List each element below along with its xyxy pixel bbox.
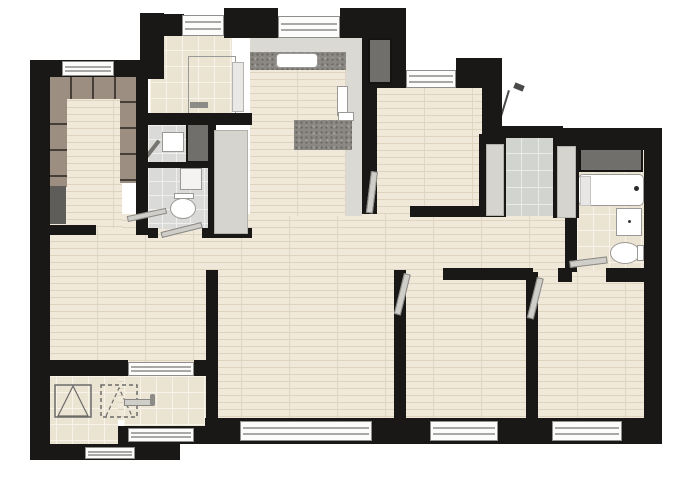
bathroom-2-duct-shaft xyxy=(579,148,643,172)
floor-plan xyxy=(0,0,676,486)
vent-equipment-platform xyxy=(85,447,135,459)
window-cloakroom xyxy=(62,61,114,76)
kitchen-sink xyxy=(276,53,318,68)
kitchen-island-appliance xyxy=(338,112,354,121)
window-bedroom-3 xyxy=(552,421,622,441)
cloakroom-dark-cabinet xyxy=(48,186,66,224)
entry-door-handle xyxy=(150,394,155,406)
wall-bathroom-1-bottom-left xyxy=(148,228,158,238)
wall-foyer-top-left xyxy=(30,360,128,376)
hall-tall-panel xyxy=(214,130,248,234)
laundry-door-handle xyxy=(190,102,208,108)
cloakroom-floor xyxy=(66,94,122,228)
wardrobe-left xyxy=(50,99,67,187)
kitchen-duct-shaft xyxy=(368,38,392,84)
window-foyer-top xyxy=(128,362,194,376)
bathroom-1-mirror-cabinet xyxy=(180,168,202,190)
wall-bedroom-1-right xyxy=(482,58,502,136)
bedroom-1-floor xyxy=(377,88,482,214)
wall-bathroom-2-bottom-stub xyxy=(558,268,572,282)
wall-bedroom-1-bottom xyxy=(410,206,490,217)
bathroom-2-toilet-tank xyxy=(637,245,644,261)
annotation-flag xyxy=(513,82,525,91)
window-laundry xyxy=(182,15,224,36)
wall-bathroom-1-divider xyxy=(148,162,210,168)
window-living-room xyxy=(240,421,372,441)
laundry-door-panel xyxy=(232,62,244,112)
window-kitchen xyxy=(278,16,340,38)
ac-unit-symbol-solid xyxy=(54,384,92,418)
bathroom-1-wall-sink xyxy=(162,132,184,152)
wall-kitchen-top-left xyxy=(224,8,278,38)
utility-niche-floor xyxy=(504,136,553,216)
niche-panel-left xyxy=(486,144,504,216)
bathtub-faucet xyxy=(634,186,639,191)
wall-right-outer xyxy=(644,150,662,422)
wall-laundry-bottom xyxy=(140,113,252,125)
wall-bathroom-2-bottom xyxy=(606,268,662,282)
wall-living-partition xyxy=(206,270,218,428)
wall-cloakroom-bottom xyxy=(50,225,96,235)
wall-bedroom-2-top xyxy=(443,268,533,280)
vanity-faucet xyxy=(628,220,631,223)
window-bedroom-1 xyxy=(406,70,456,88)
niche-panel-right xyxy=(557,146,576,218)
bathroom-2-toilet xyxy=(610,242,640,264)
wall-foyer-top-right xyxy=(194,360,218,376)
kitchen-island xyxy=(294,120,352,150)
bathtub-ledge xyxy=(580,176,591,206)
wall-laundry-top xyxy=(160,14,184,36)
bathroom-1-toilet xyxy=(170,198,196,219)
wall-left-outer xyxy=(30,60,50,456)
window-foyer-bottom xyxy=(128,428,194,442)
window-bedroom-2 xyxy=(430,421,498,441)
